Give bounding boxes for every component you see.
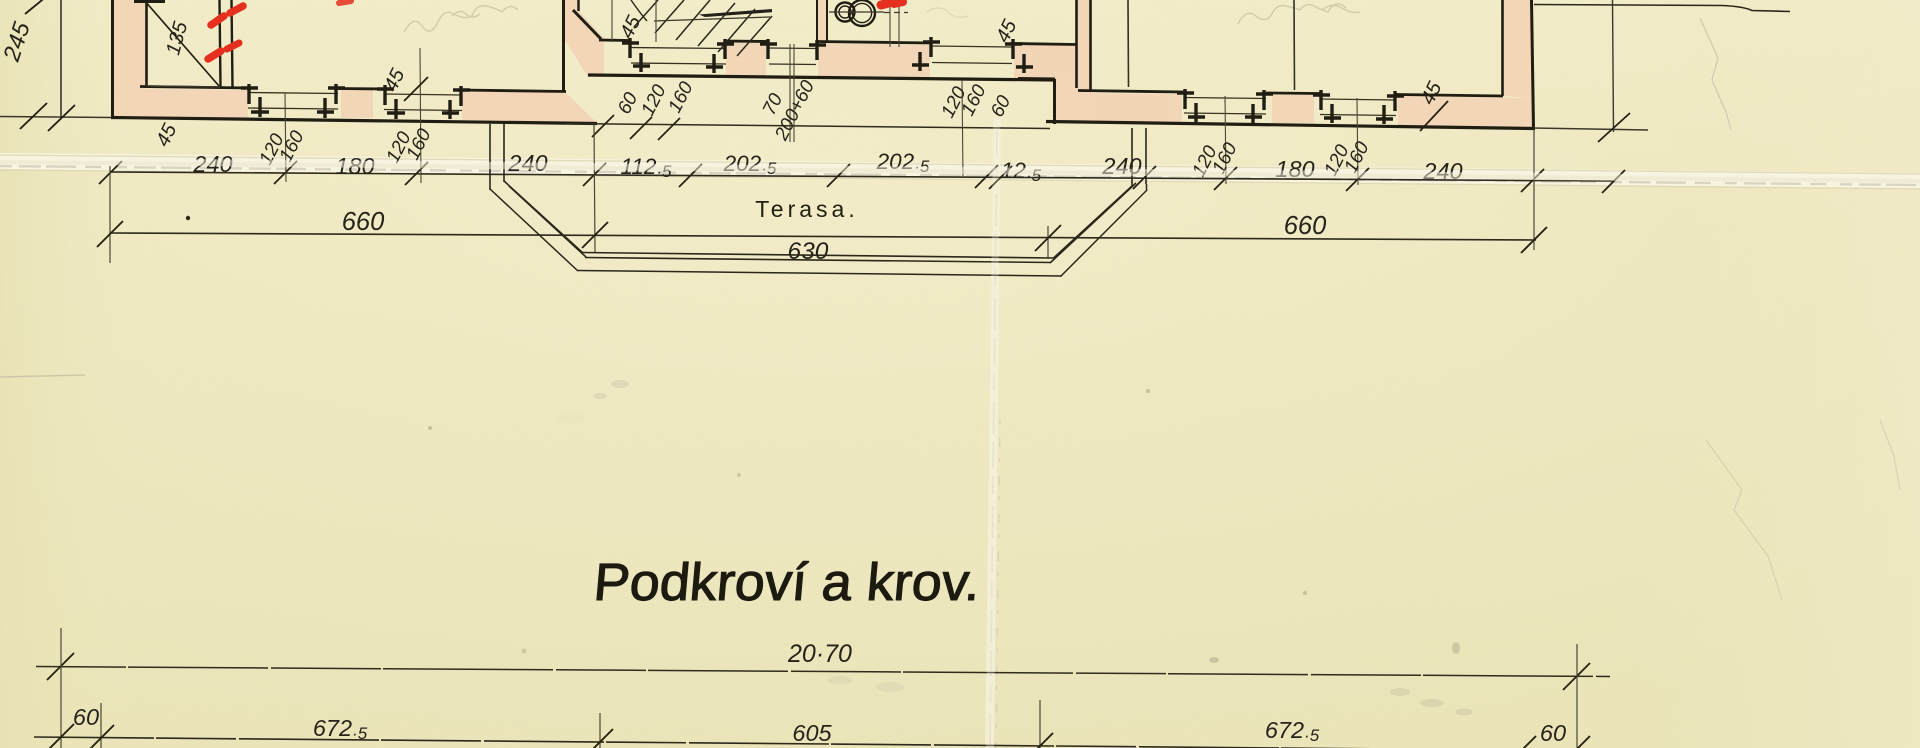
- svg-text:180: 180: [1275, 156, 1314, 182]
- svg-text:630: 630: [788, 238, 829, 265]
- svg-text:Terasa.: Terasa.: [755, 196, 858, 222]
- svg-text:240: 240: [1422, 158, 1462, 184]
- svg-text:60: 60: [73, 704, 99, 730]
- svg-text:Podkroví a krov.: Podkroví a krov.: [591, 553, 982, 612]
- svg-text:20·70: 20·70: [787, 640, 852, 668]
- svg-text:605: 605: [792, 720, 832, 746]
- svg-text:60: 60: [1540, 720, 1566, 746]
- svg-text:660: 660: [1284, 212, 1327, 240]
- svg-text:660: 660: [342, 208, 385, 236]
